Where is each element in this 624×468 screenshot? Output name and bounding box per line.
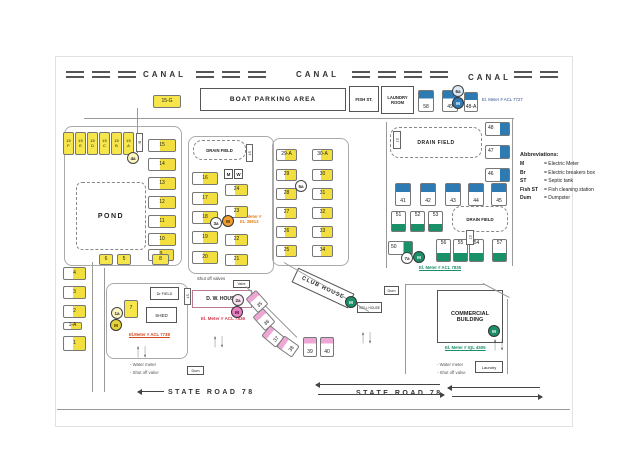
marker-3a: 3a (210, 217, 222, 229)
canal-dash (514, 76, 532, 78)
canal-label-1: CANAL (143, 70, 186, 80)
legend-water-meter-left: - Water meter (130, 362, 156, 367)
electric-meter-marker: M (231, 306, 243, 318)
canal-dash (352, 76, 370, 78)
lot-2: 2 (63, 305, 86, 318)
canal-dash (540, 76, 558, 78)
lot-41: 41 (395, 183, 411, 206)
canal-dash (222, 71, 240, 73)
fish-station: FISH ST. (349, 86, 379, 112)
arrow-head-icon (447, 385, 452, 391)
canal-dash (92, 71, 110, 73)
annotation-shut-off-valves: Shut off valves (197, 276, 225, 281)
lot-12: 12 (148, 196, 176, 209)
annotation-meter-7835: El. Meter # ACL 7835 (419, 265, 461, 270)
lot-16: 16 (192, 172, 218, 185)
lot-33: 33 (312, 226, 333, 238)
lot-27: 27 (276, 207, 297, 219)
laundry-room: LAUNDRY ROOM (381, 86, 414, 114)
lot-14: 14 (148, 158, 176, 171)
commercial-outline-west (405, 284, 406, 374)
canal-dash (540, 71, 558, 73)
lot-4: 4 (63, 267, 86, 280)
septic-tank-box: ST (184, 288, 191, 305)
road-arrow (318, 394, 444, 395)
lot-17: 17 (192, 192, 218, 205)
lot-1-A: 1-A (63, 322, 82, 330)
septic-tank-box: ST (246, 144, 253, 162)
canal-label-2: CANAL (296, 70, 339, 80)
lot-11: 11 (148, 215, 176, 228)
lot-42: 42 (420, 183, 436, 206)
canal-dash (378, 71, 396, 73)
canal-dash (378, 76, 396, 78)
marker-5a: 5a (295, 180, 307, 192)
lot-46: 46 (485, 168, 510, 182)
canal-dash (196, 71, 214, 73)
lot-52: 52 (410, 211, 425, 232)
abbr-key: M (520, 161, 544, 167)
canal-label-3: CANAL (468, 73, 511, 83)
boat-parking-area: BOAT PARKING AREA (200, 88, 346, 111)
lot-58: 58 (418, 90, 434, 112)
lot-40: 40 (320, 337, 334, 357)
electric-meter-marker: M (110, 319, 122, 331)
top-road-line (84, 118, 514, 119)
canal-dash (404, 71, 422, 73)
canal-dash (118, 71, 136, 73)
abbr-meaning: = Septic tank (544, 178, 573, 184)
canal-dash (430, 71, 448, 73)
lot-25: 25 (276, 245, 297, 257)
abbreviation-row: M = Electric Meter (520, 161, 612, 167)
drain-field-north: DRAIN FIELD (390, 127, 482, 158)
electric-meter-marker: M (222, 215, 234, 227)
lot-53: 53 (428, 211, 443, 232)
canal-dash (514, 71, 532, 73)
lot-15D: 15 D (87, 132, 98, 155)
abbr-key: Fish ST (520, 187, 544, 193)
lot-47: 47 (485, 145, 510, 159)
lot-15B: 15 B (111, 132, 122, 155)
marker-1a: 1a (111, 307, 123, 319)
abbr-meaning: = Dumpster (544, 195, 570, 201)
lot-51: 51 (391, 211, 406, 232)
abbr-key: ST (520, 178, 544, 184)
lot-43: 43 (445, 183, 461, 206)
lot-44: 44 (468, 183, 484, 206)
electric-meter-marker: M (413, 251, 425, 263)
lot-5: 5 (117, 254, 131, 265)
lot-30-A: 30-A (312, 149, 333, 161)
road-arrow: ↑ (213, 330, 217, 352)
road-arrow (448, 387, 540, 388)
abbr-meaning: = Electric breakers box (544, 170, 595, 176)
lot-15C: 15 C (99, 132, 110, 155)
canal-dash (404, 76, 422, 78)
lot-48-A: 48-A (464, 92, 478, 112)
site-map: CANAL CANAL CANAL BOAT PARKING AREA FISH… (0, 0, 624, 468)
abbr-meaning: = Electric Meter (544, 161, 579, 167)
arrow-head-icon (137, 389, 142, 395)
west-road-line-2 (104, 268, 105, 392)
road-arrow (138, 391, 164, 392)
lot-21: 21 (225, 254, 248, 266)
east-boundary-line (512, 118, 513, 266)
lot-1: 1 (63, 336, 86, 351)
abbreviation-row: Fish ST = Fish cleaning station (520, 187, 612, 193)
marker-7a: 7a (401, 252, 413, 264)
lot-56: 56 (436, 239, 451, 262)
septic-tank-box: ST (393, 131, 401, 149)
canal-dash (196, 76, 214, 78)
abbreviation-row: Dum = Dumpster (520, 195, 612, 201)
canal-dash (430, 76, 448, 78)
lot-8: 8 (152, 254, 169, 265)
canal-dash (92, 76, 110, 78)
road-arrow: ↑ (361, 326, 365, 348)
canal-dash (248, 71, 266, 73)
legend-shutoff-right: - Shut off valve (437, 370, 466, 375)
abbr-meaning: = Fish cleaning station (544, 187, 594, 193)
right-block-line (386, 122, 387, 268)
marker-4a: 4a (127, 152, 139, 164)
canal-dash (352, 71, 370, 73)
abbr-key: Br (520, 170, 544, 176)
lot-3: 3 (63, 286, 86, 299)
abbreviations-panel: Abbreviations: M = Electric Meter Br = E… (520, 152, 612, 204)
lot-39: 39 (303, 337, 317, 357)
annotation-meter-4505: El. Meter # IQL 4505 (445, 345, 486, 350)
septic-tank-box: ST (466, 230, 474, 245)
road-arrow: ↑ (136, 340, 140, 362)
lot-45: 45 (491, 183, 507, 206)
lot-30: 30 (312, 169, 333, 181)
electric-meter-marker: M (452, 97, 464, 109)
annotation-meter-7727: El. Meter # ACL 7727 (482, 97, 523, 102)
lot-6: 6 (99, 254, 113, 265)
canal-dash (118, 76, 136, 78)
abbreviation-row: ST = Septic tank (520, 178, 612, 184)
marker-2a: 2a (232, 294, 244, 306)
lot-7: 7 (124, 300, 138, 318)
lot-28: 28 (276, 188, 297, 200)
west-road-line-1 (92, 262, 93, 392)
marker-6a: 6a (452, 85, 464, 97)
electric-meter-marker: M (345, 296, 357, 308)
road-arrow: ↓ (500, 333, 504, 355)
lot-32: 32 (312, 207, 333, 219)
lot-20: 20 (192, 251, 218, 264)
lot-26: 26 (276, 226, 297, 238)
lot-15: 15 (148, 139, 176, 152)
lot-29-A: 29-A (276, 149, 297, 161)
lot-10: 10 (148, 233, 176, 246)
bottom-boundary-line (57, 409, 570, 410)
road-arrow (316, 384, 440, 385)
lot-29: 29 (276, 169, 297, 181)
canal-dash (248, 76, 266, 78)
legend-shutoff-left: - Shut off valve (130, 370, 159, 375)
canal-dash (66, 76, 84, 78)
road-arrow: ↑ (493, 333, 497, 355)
lot-24: 24 (225, 184, 248, 196)
lot-15F: 15 F (63, 132, 74, 155)
road-arrow (452, 396, 542, 397)
lot-57: 57 (492, 239, 507, 262)
abbreviations-title: Abbreviations: (520, 152, 612, 158)
commercial-outline-top (405, 284, 485, 285)
lot-22: 22 (225, 234, 248, 246)
lot-31: 31 (312, 188, 333, 200)
road-arrow: ↓ (143, 340, 147, 362)
road-arrow: ↓ (220, 330, 224, 352)
lot-13: 13 (148, 177, 176, 190)
lot-48: 48 (485, 122, 510, 136)
lot-15-G: 15-G (153, 95, 181, 108)
arrow-head-icon (440, 392, 445, 398)
road-arrow: ↓ (368, 326, 372, 348)
drain-field-east: DRAIN FIELD (452, 206, 508, 232)
canal-dash (66, 71, 84, 73)
commercial-outline-east (507, 299, 508, 374)
laundry-small-box: Laundry (475, 361, 503, 373)
abbreviation-row: Br = Electric breakers box (520, 170, 612, 176)
arrow-head-icon (315, 382, 320, 388)
lot-34: 34 (312, 245, 333, 257)
breaker-box: Br (136, 133, 143, 152)
lot-15E: 15 E (75, 132, 86, 155)
lot-19: 19 (192, 231, 218, 244)
abbr-key: Dum (520, 195, 544, 201)
dumpster-west: Dum (187, 366, 204, 375)
state-road-label-left: STATE ROAD 78 (168, 389, 255, 398)
dumpster-east: Dum (384, 286, 399, 295)
legend-water-meter-right: - Water meter (437, 362, 463, 367)
arrow-head-icon (538, 394, 543, 400)
canal-dash (222, 76, 240, 78)
